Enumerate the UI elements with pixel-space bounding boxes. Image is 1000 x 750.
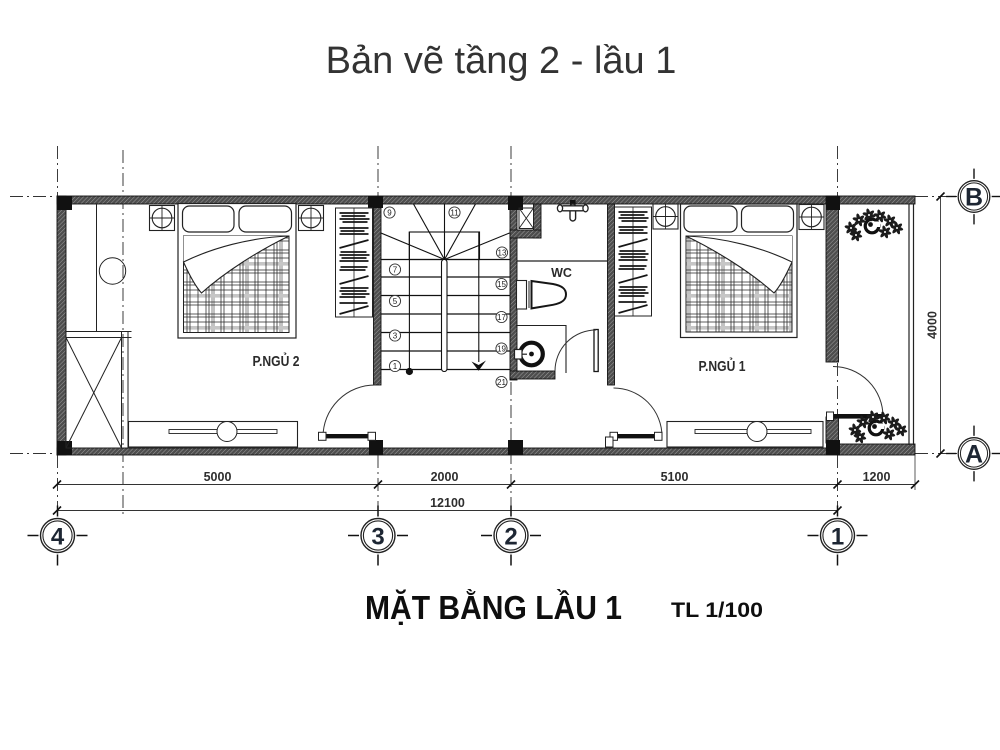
svg-text:13: 13 — [498, 248, 507, 257]
svg-text:P.NGỦ 1: P.NGỦ 1 — [699, 357, 746, 375]
svg-text:MẶT BẰNG LẦU 1: MẶT BẰNG LẦU 1 — [365, 589, 622, 626]
svg-text:1200: 1200 — [863, 470, 891, 484]
svg-text:5000: 5000 — [204, 470, 232, 484]
svg-text:11: 11 — [450, 208, 459, 217]
svg-text:Bản vẽ tầng 2 - lầu 1: Bản vẽ tầng 2 - lầu 1 — [326, 40, 677, 82]
svg-text:5: 5 — [393, 297, 398, 306]
svg-text:5100: 5100 — [661, 470, 689, 484]
svg-text:P.NGỦ 2: P.NGỦ 2 — [253, 352, 300, 370]
svg-text:21: 21 — [497, 378, 506, 387]
svg-text:7: 7 — [393, 265, 398, 274]
svg-text:3: 3 — [371, 524, 384, 551]
svg-text:A: A — [965, 441, 983, 469]
svg-text:4000: 4000 — [926, 311, 940, 339]
svg-text:12100: 12100 — [430, 496, 465, 510]
svg-text:19: 19 — [497, 344, 506, 353]
svg-text:2000: 2000 — [431, 470, 459, 484]
svg-text:2: 2 — [504, 524, 517, 551]
svg-text:17: 17 — [497, 313, 506, 322]
svg-text:1: 1 — [831, 524, 844, 551]
svg-text:15: 15 — [497, 280, 506, 289]
svg-text:9: 9 — [387, 208, 392, 217]
svg-text:TL 1/100: TL 1/100 — [671, 598, 763, 622]
svg-text:WC: WC — [551, 266, 572, 280]
svg-text:1: 1 — [393, 362, 398, 371]
svg-text:3: 3 — [393, 331, 398, 340]
svg-text:B: B — [965, 184, 983, 212]
svg-text:4: 4 — [51, 524, 65, 551]
